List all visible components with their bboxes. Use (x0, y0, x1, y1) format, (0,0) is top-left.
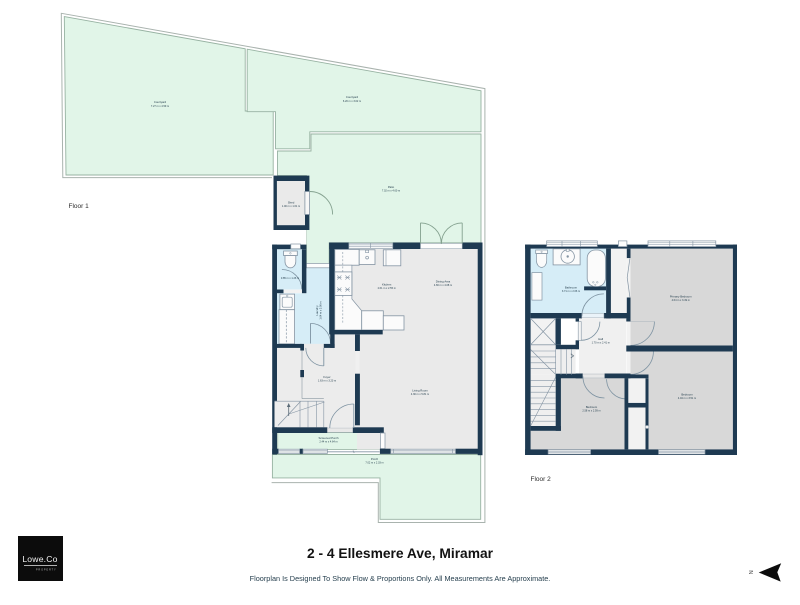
svg-text:Courtyard: Courtyard (154, 100, 167, 104)
svg-text:Living Room: Living Room (412, 389, 428, 393)
svg-text:Lowe.Co: Lowe.Co (22, 554, 57, 564)
svg-text:7.02 m x 4.60 m: 7.02 m x 4.60 m (382, 189, 400, 193)
svg-text:6.20 m x 3.02 m: 6.20 m x 3.02 m (343, 99, 361, 103)
svg-text:7.27 m x 4.59 m: 7.27 m x 4.59 m (151, 104, 169, 108)
svg-text:0.85 m x 1.26 m: 0.85 m x 1.26 m (281, 276, 299, 280)
svg-text:Bedroom: Bedroom (681, 392, 693, 396)
svg-text:2.44 m x 4.64 m: 2.44 m x 4.64 m (319, 440, 337, 444)
svg-text:Primary Bedroom: Primary Bedroom (670, 294, 692, 298)
svg-text:Dining Area: Dining Area (436, 280, 451, 284)
svg-text:1.00 m x 1.61 m: 1.00 m x 1.61 m (282, 204, 300, 208)
svg-text:7.02 m x 2.33 m: 7.02 m x 2.33 m (365, 461, 383, 465)
svg-text:4.04 m x 3.51 m: 4.04 m x 3.51 m (678, 396, 696, 400)
svg-text:Floor 1: Floor 1 (69, 203, 90, 210)
svg-text:Courtyard: Courtyard (346, 95, 359, 99)
svg-text:2.61 m x 2.55 m: 2.61 m x 2.55 m (378, 286, 396, 290)
svg-text:Foyer: Foyer (323, 375, 330, 379)
svg-text:Screened Porch: Screened Porch (318, 436, 339, 440)
svg-text:2 - 4 Ellesmere Ave, Miramar: 2 - 4 Ellesmere Ave, Miramar (307, 546, 494, 561)
svg-text:Porch: Porch (371, 457, 379, 461)
svg-text:PROPERTY: PROPERTY (36, 568, 57, 572)
svg-text:Shed: Shed (288, 201, 295, 205)
svg-text:3.71 m x 2.66 m: 3.71 m x 2.66 m (562, 289, 580, 293)
svg-text:4.64 m x 3.49 m: 4.64 m x 3.49 m (672, 298, 690, 302)
svg-text:1.63 m x 3.23 m: 1.63 m x 3.23 m (318, 379, 336, 383)
svg-text:Floorplan Is Designed To Show: Floorplan Is Designed To Show Flow & Pro… (250, 574, 551, 583)
svg-text:1.04 m x 3.00 m: 1.04 m x 3.00 m (319, 301, 323, 319)
svg-text:2.58 m x 2.59 m: 2.58 m x 2.59 m (582, 409, 600, 413)
svg-text:Floor 2: Floor 2 (531, 476, 552, 483)
svg-text:Kitchen: Kitchen (382, 282, 392, 286)
svg-text:N: N (749, 570, 755, 574)
svg-text:4.30 m x 5.81 m: 4.30 m x 5.81 m (411, 392, 429, 396)
svg-text:Bedroom: Bedroom (586, 405, 598, 409)
svg-text:1.70 m x 2.41 m: 1.70 m x 2.41 m (592, 341, 610, 345)
svg-text:Hall: Hall (598, 337, 603, 341)
svg-text:4.66 m x 4.08 m: 4.66 m x 4.08 m (434, 283, 452, 287)
svg-text:Patio: Patio (388, 185, 395, 189)
svg-text:Laundry: Laundry (315, 305, 319, 316)
svg-text:Bathroom: Bathroom (565, 285, 578, 289)
